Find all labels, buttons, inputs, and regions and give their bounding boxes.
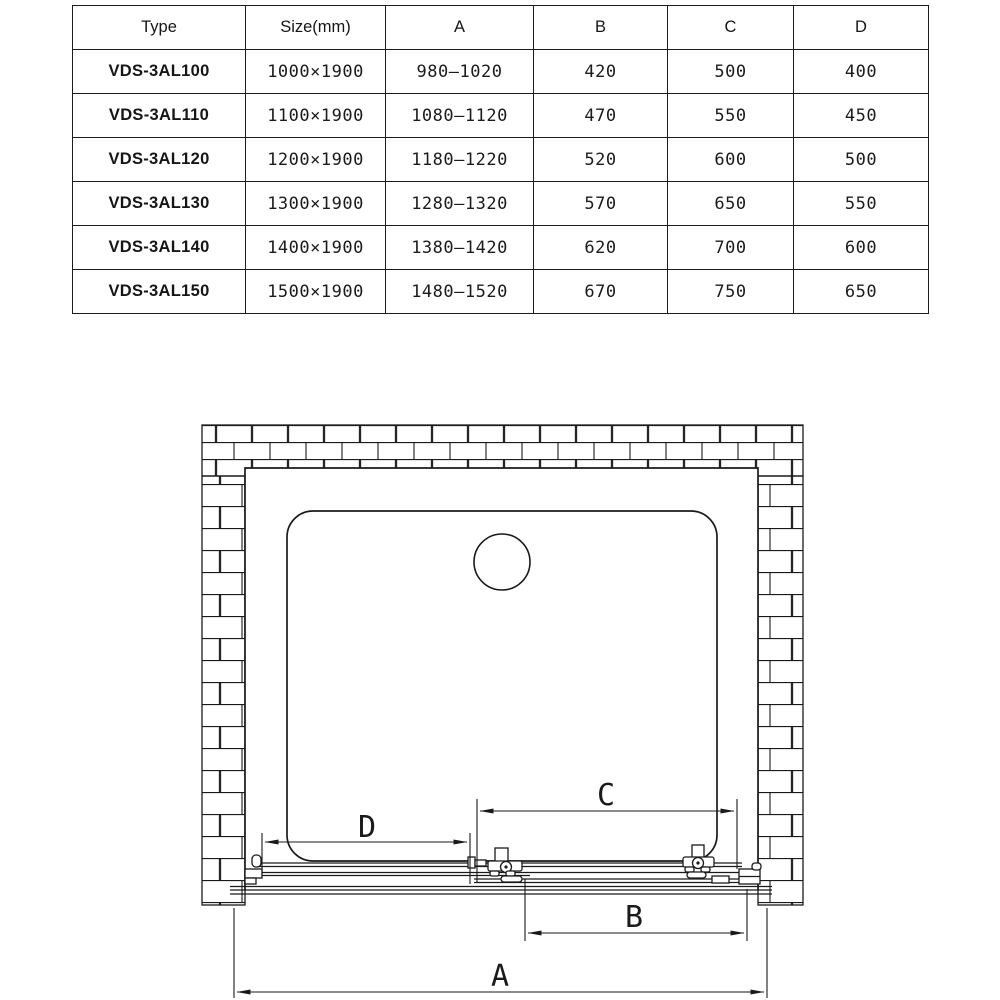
room-outline — [245, 468, 758, 890]
dimension-a: A — [234, 908, 767, 998]
spec-sheet-page: Type Size(mm) A B C D VDS-3AL100 1000×19… — [0, 0, 1000, 1000]
brick-wall-left — [202, 476, 245, 905]
brick-wall-right — [758, 476, 803, 905]
dim-label-c: C — [597, 778, 615, 813]
dim-label-b: B — [625, 900, 643, 935]
dim-label-a: A — [491, 959, 509, 994]
installation-diagram: D C B A — [0, 0, 1000, 1000]
dim-label-d: D — [358, 810, 376, 845]
